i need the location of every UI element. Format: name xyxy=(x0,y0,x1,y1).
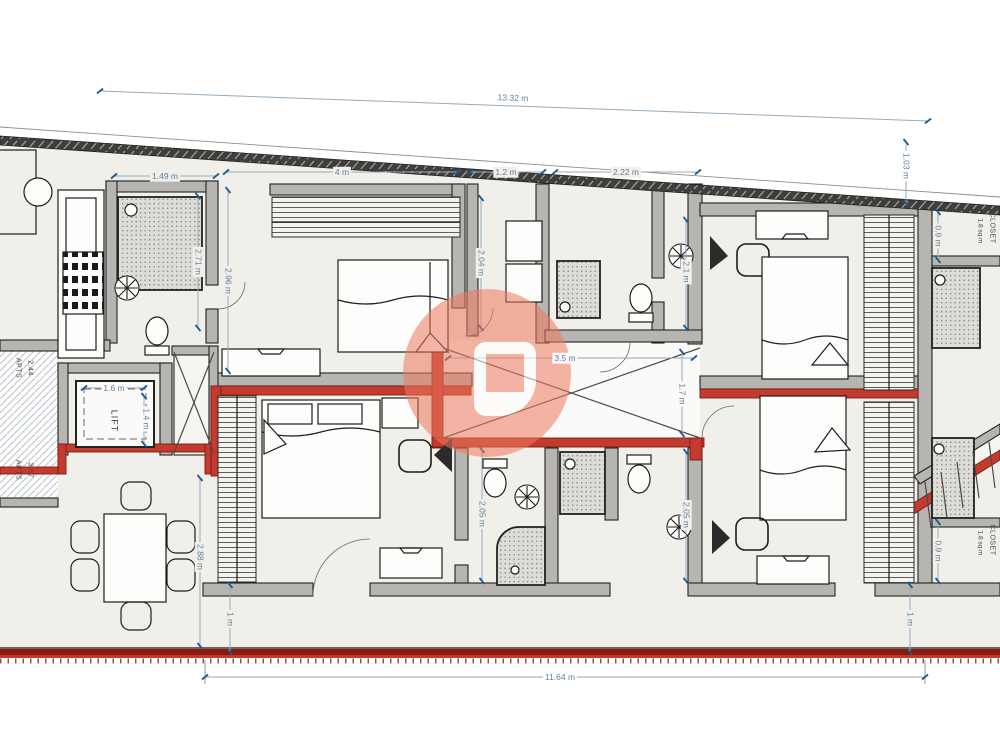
dim-total-bottom: 11.64 m xyxy=(543,672,577,683)
apts-upper-value: 2.44 xyxy=(26,358,35,378)
toilet-bath3 xyxy=(483,459,507,497)
closet-top-area: 1.8 sq.m xyxy=(975,217,984,246)
dim-left-1m: 1 m xyxy=(225,610,236,628)
dim-bath3-height: 2.05 m xyxy=(477,499,488,529)
lift-label: LIFT xyxy=(109,408,120,435)
dim-bath2-height: 2.04 m xyxy=(476,248,487,278)
chair-top-left xyxy=(24,178,52,206)
closet-bottom-area: 1.8 sq.m xyxy=(975,529,984,558)
apts-upper-label: APTS xyxy=(14,356,23,380)
dim-bath1-height: 2.71 m xyxy=(193,247,204,277)
floor-plan-page: 13.32 m 1.49 m 4 m 1.2 m 2.22 m 1.03 m 0… xyxy=(0,0,1000,750)
dim-bath4-height: 2.05 m xyxy=(681,500,692,530)
closet-top-label: CLOSET xyxy=(988,210,997,245)
dim-bath2-width: 2.22 m xyxy=(611,167,641,178)
dim-closet-top-depth: 0.9 m xyxy=(933,223,944,248)
dim-closet-bottom-depth: 0.9 m xyxy=(933,538,944,563)
shower-head-stall xyxy=(565,459,575,469)
dim-bed1-width: 4 m xyxy=(333,167,351,178)
closet-bottom-drain xyxy=(934,444,944,454)
dim-closet1-width: 1.2 m xyxy=(493,167,518,178)
cabinet-1 xyxy=(506,221,542,261)
dim-void-height: 1.7 m xyxy=(677,381,688,406)
shower-head-bath2 xyxy=(560,302,570,312)
dresser-bed2 xyxy=(756,211,828,239)
dim-lift-width: 1.6 m xyxy=(101,383,126,394)
dim-bath-tr-height: 2.1 m xyxy=(681,259,692,284)
floor-plan-drawing xyxy=(0,0,1000,750)
dining-table xyxy=(104,514,166,602)
bottom-boundary xyxy=(0,648,1000,661)
dim-lift-depth: 1.4 m xyxy=(141,406,152,431)
toilet-bath1 xyxy=(145,317,169,355)
sink-bath3 xyxy=(515,485,539,509)
dim-bath1-width: 1.49 m xyxy=(150,171,180,182)
dim-void-width: 3.5 m xyxy=(552,353,577,364)
watermark-logo xyxy=(403,289,571,457)
toilet-bath2 xyxy=(629,284,653,322)
sink-bath1 xyxy=(115,276,139,300)
dim-right-top: 1.03 m xyxy=(901,151,912,181)
closet-bottom-label: CLOSET xyxy=(988,522,997,557)
apts-lower-value: 3.57 xyxy=(26,460,35,480)
dim-total-top: 13.32 m xyxy=(495,92,530,104)
wardrobe-bed1 xyxy=(272,197,460,237)
stove xyxy=(63,252,103,314)
dresser-bed4 xyxy=(757,556,829,584)
shower-head-bath1 xyxy=(125,204,137,216)
toilet-bath4 xyxy=(627,455,651,493)
closet-top-drain xyxy=(935,275,945,285)
bottom-red-wall xyxy=(0,649,1000,655)
dim-right-1m: 1 m xyxy=(905,610,916,628)
shower-head-bath3 xyxy=(511,566,519,574)
dim-dining-height: 2.88 m xyxy=(195,542,206,572)
apts-lower-label: APTS xyxy=(14,458,23,482)
dim-bed1-height: 2.96 m xyxy=(223,266,234,296)
dresser-bed1 xyxy=(222,349,320,376)
corner-shower-bath3 xyxy=(497,527,545,585)
bed4 xyxy=(760,396,846,520)
